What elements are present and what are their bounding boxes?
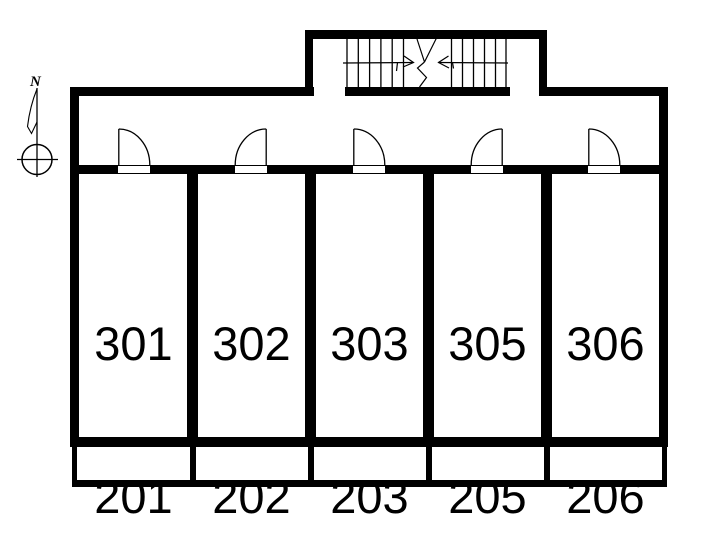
balcony-left-edge	[72, 447, 77, 484]
floor-plan: N 301 201 101 302 202 102 303 203 103 30…	[0, 0, 712, 534]
door-threshold	[353, 166, 385, 173]
unit-divider-wall	[187, 165, 198, 447]
balcony-divider	[544, 447, 550, 484]
unit-column-2: 302 202 102	[198, 216, 305, 534]
stair-direction-arrows	[343, 56, 508, 71]
room-number: 201	[79, 471, 188, 522]
stair-break-line	[417, 37, 437, 87]
door-unit-1	[119, 129, 150, 166]
room-number: 205	[434, 471, 541, 522]
balcony-divider	[190, 447, 196, 484]
unit-divider-wall	[541, 165, 552, 447]
staircase	[305, 30, 547, 96]
room-number: 302	[198, 318, 305, 369]
door-threshold	[118, 166, 150, 173]
room-number: 202	[198, 471, 305, 522]
unit-column-1: 301 201 101	[79, 216, 188, 534]
balcony-right-edge	[662, 447, 667, 484]
stair-landing-wall	[345, 87, 510, 96]
door-threshold	[471, 166, 503, 173]
room-number: 206	[552, 471, 659, 522]
right-outer-wall	[659, 87, 668, 447]
top-wall-right	[539, 87, 668, 96]
door-unit-2	[235, 129, 266, 166]
door-unit-4	[471, 129, 502, 166]
north-compass: N	[17, 74, 58, 177]
stair-right-wall	[539, 30, 547, 96]
door-unit-5	[589, 129, 620, 166]
door-threshold	[235, 166, 267, 173]
left-outer-wall	[70, 87, 79, 447]
unit-column-3: 303 203 103	[316, 216, 423, 534]
unit-column-5: 306 206	[552, 216, 659, 534]
doors	[119, 129, 620, 166]
balcony-divider	[308, 447, 314, 484]
room-number: 301	[79, 318, 188, 369]
balcony-divider	[426, 447, 432, 484]
top-wall-left	[70, 87, 314, 96]
room-number: 203	[316, 471, 423, 522]
door-threshold	[588, 166, 620, 173]
north-label: N	[29, 74, 42, 90]
north-needle-pennant	[28, 89, 38, 134]
unit-divider-wall	[305, 165, 316, 447]
room-number: 303	[316, 318, 423, 369]
room-number: 305	[434, 318, 541, 369]
unit-divider-wall	[423, 165, 434, 447]
unit-column-4: 305 205 105	[434, 216, 541, 534]
door-unit-3	[354, 129, 385, 166]
stair-left-wall	[305, 30, 313, 96]
stair-top-wall	[305, 30, 547, 39]
room-number: 306	[552, 318, 659, 369]
